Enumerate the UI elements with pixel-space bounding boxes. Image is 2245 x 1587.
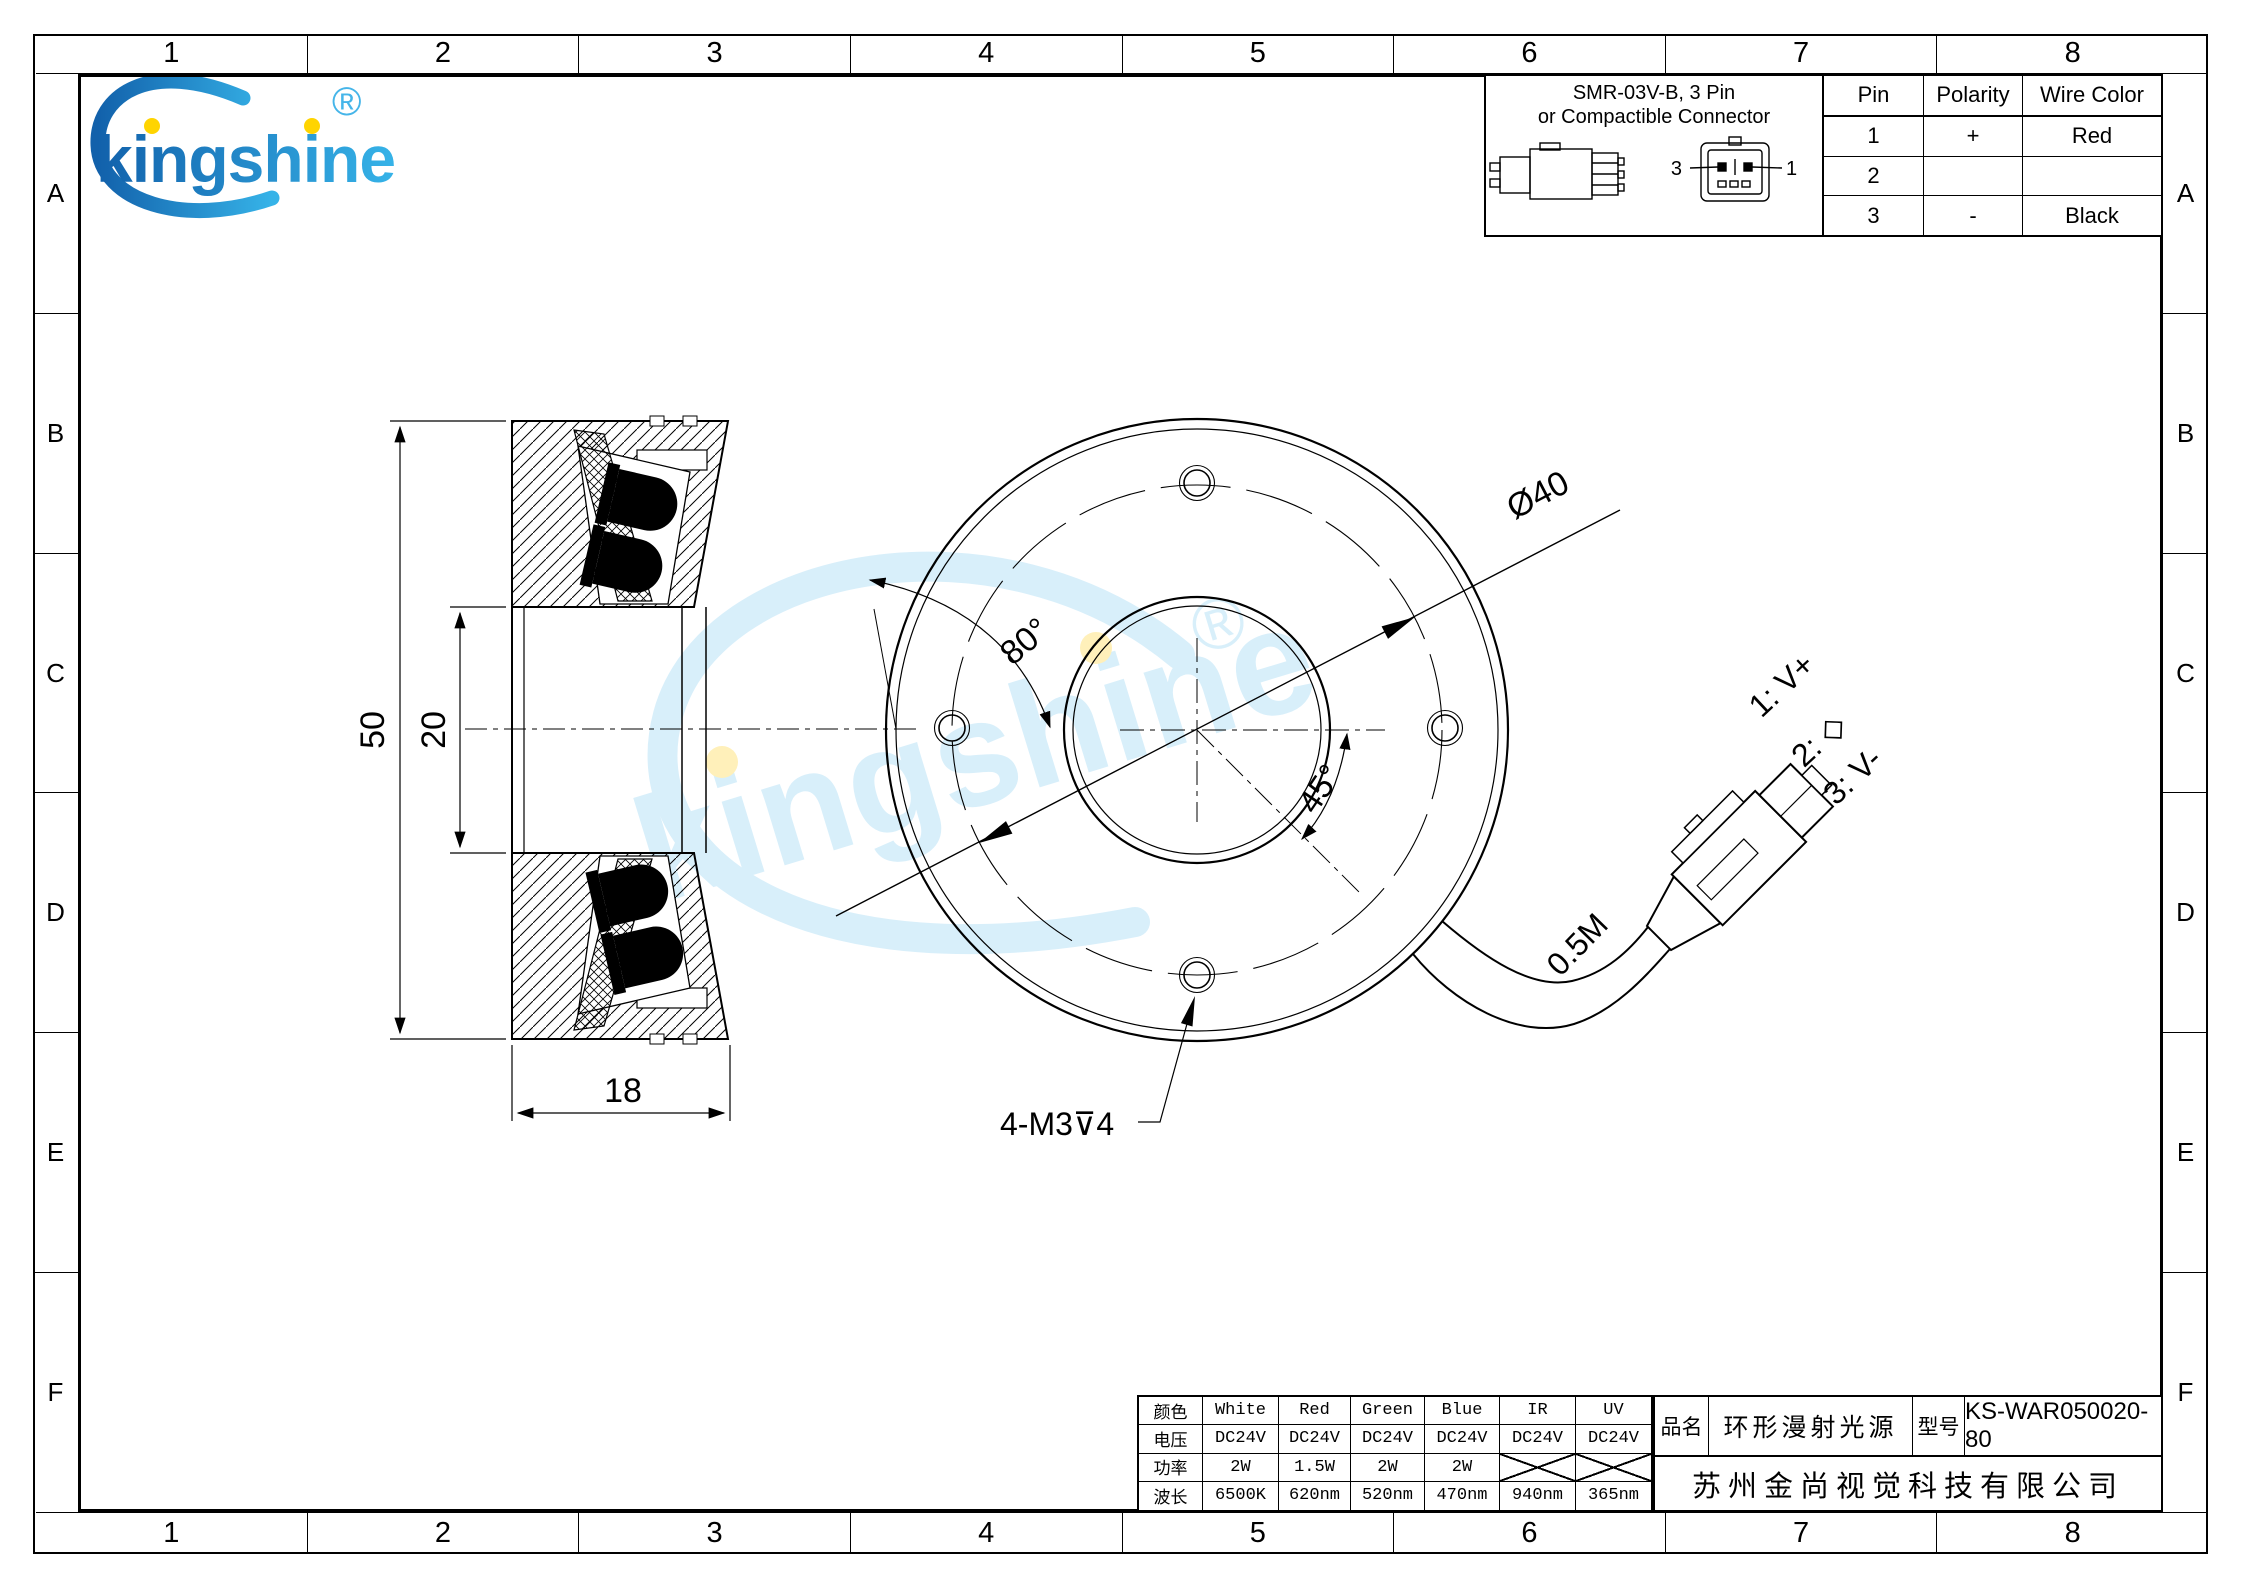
- spec-cell: 470nm: [1425, 1482, 1500, 1510]
- spec-cell: Blue: [1425, 1397, 1500, 1425]
- spec-cell: 940nm: [1500, 1482, 1576, 1510]
- spec-cell-crossed: [1576, 1454, 1651, 1482]
- spec-row-label: 颜色: [1139, 1397, 1203, 1425]
- zone-column-label: 1: [36, 1513, 307, 1554]
- polarity-cell: [1924, 157, 2023, 196]
- polarity-cell: +: [1924, 117, 2023, 156]
- pin-cell: 3: [1824, 196, 1924, 235]
- spec-cell: 620nm: [1279, 1482, 1351, 1510]
- zone-column-label: 1: [36, 34, 307, 73]
- zone-column-label: 7: [1665, 34, 1937, 73]
- connector-drawing-icon: 3 1: [1486, 131, 1820, 233]
- spec-cell: IR: [1500, 1397, 1576, 1425]
- spec-cell: 6500K: [1203, 1482, 1279, 1510]
- spec-cell: DC24V: [1203, 1425, 1279, 1453]
- spec-cell: 1.5W: [1279, 1454, 1351, 1482]
- pin-table: Pin Polarity Wire Color 1 + Red 2 3 - Bl…: [1824, 76, 2161, 235]
- spec-cell: DC24V: [1279, 1425, 1351, 1453]
- sheet-inner-frame: [78, 74, 2163, 1512]
- zone-column-label: 4: [850, 34, 1122, 73]
- spec-cell: White: [1203, 1397, 1279, 1425]
- zone-row-label: B: [2163, 313, 2208, 553]
- zone-column-label: 2: [307, 34, 579, 73]
- zone-column-label: 2: [307, 1513, 579, 1554]
- pin-table-row: 1 + Red: [1824, 117, 2161, 157]
- connector-pin1-label: 1: [1786, 158, 1797, 180]
- spec-cell-crossed: [1500, 1454, 1576, 1482]
- title-block-top-row: 品名 环形漫射光源 型号 KS-WAR050020-80: [1655, 1397, 2161, 1457]
- company-name: 苏州金尚视觉科技有限公司: [1655, 1457, 2161, 1510]
- zone-column-label: 3: [578, 34, 850, 73]
- pin-cell: 2: [1824, 157, 1924, 196]
- spec-cell: 2W: [1351, 1454, 1425, 1482]
- wire-color-cell: Red: [2023, 117, 2161, 156]
- zone-band-bottom: 1 2 3 4 5 6 7 8: [36, 1512, 2208, 1554]
- zone-row-label: E: [33, 1032, 78, 1272]
- connector-info-box: SMR-03V-B, 3 Pin or Compactible Connecto…: [1484, 74, 2163, 237]
- connector-title: SMR-03V-B, 3 Pin or Compactible Connecto…: [1486, 76, 1822, 129]
- spec-cell: DC24V: [1500, 1425, 1576, 1453]
- spec-row-label: 功率: [1139, 1454, 1203, 1482]
- zone-band-top: 1 2 3 4 5 6 7 8: [36, 34, 2208, 74]
- zone-band-right: A B C D E F: [2163, 74, 2208, 1512]
- zone-row-label: A: [2163, 74, 2208, 313]
- zone-row-label: F: [2163, 1272, 2208, 1512]
- spec-cell: 520nm: [1351, 1482, 1425, 1510]
- model-number: KS-WAR050020-80: [1965, 1397, 2161, 1455]
- connector-title-line2: or Compactible Connector: [1486, 105, 1822, 129]
- zone-band-left: A B C D E F: [33, 74, 78, 1512]
- zone-column-label: 5: [1122, 34, 1394, 73]
- spec-cell: 2W: [1425, 1454, 1500, 1482]
- wire-color-cell: [2023, 157, 2161, 196]
- spec-row-label: 电压: [1139, 1425, 1203, 1453]
- spec-cell: DC24V: [1351, 1425, 1425, 1453]
- pin-table-header-row: Pin Polarity Wire Color: [1824, 76, 2161, 117]
- zone-column-label: 4: [850, 1513, 1122, 1554]
- spec-row-label: 波长: [1139, 1482, 1203, 1510]
- polarity-header: Polarity: [1924, 76, 2023, 115]
- connector-pin3-label: 3: [1671, 158, 1682, 180]
- zone-column-label: 7: [1665, 1513, 1937, 1554]
- connector-spec-cell: SMR-03V-B, 3 Pin or Compactible Connecto…: [1486, 76, 1824, 235]
- product-name-label: 品名: [1655, 1397, 1709, 1455]
- zone-row-label: C: [33, 553, 78, 793]
- pin-header: Pin: [1824, 76, 1924, 115]
- zone-column-label: 8: [1936, 1513, 2208, 1554]
- zone-row-label: F: [33, 1272, 78, 1512]
- spec-cell: Red: [1279, 1397, 1351, 1425]
- spec-cell: UV: [1576, 1397, 1651, 1425]
- zone-row-label: A: [33, 74, 78, 313]
- zone-row-label: D: [2163, 792, 2208, 1032]
- spec-cell: 365nm: [1576, 1482, 1651, 1510]
- zone-column-label: 5: [1122, 1513, 1394, 1554]
- zone-row-label: B: [33, 313, 78, 553]
- title-block: 品名 环形漫射光源 型号 KS-WAR050020-80 苏州金尚视觉科技有限公…: [1653, 1395, 2163, 1512]
- zone-column-label: 6: [1393, 1513, 1665, 1554]
- zone-row-label: C: [2163, 553, 2208, 793]
- zone-column-label: 3: [578, 1513, 850, 1554]
- zone-column-label: 6: [1393, 34, 1665, 73]
- connector-title-line1: SMR-03V-B, 3 Pin: [1486, 81, 1822, 105]
- product-name: 环形漫射光源: [1709, 1397, 1913, 1455]
- model-label: 型号: [1913, 1397, 1965, 1455]
- pin-table-row: 3 - Black: [1824, 196, 2161, 235]
- wire-color-cell: Black: [2023, 196, 2161, 235]
- wire-color-header: Wire Color: [2023, 76, 2161, 115]
- polarity-cell: -: [1924, 196, 2023, 235]
- spec-cell: DC24V: [1576, 1425, 1651, 1453]
- spec-cell: DC24V: [1425, 1425, 1500, 1453]
- spec-table: 颜色 White Red Green Blue IR UV 电压 DC24V D…: [1137, 1395, 1653, 1512]
- spec-cell: 2W: [1203, 1454, 1279, 1482]
- zone-row-label: E: [2163, 1032, 2208, 1272]
- pin-cell: 1: [1824, 117, 1924, 156]
- pin-table-row: 2: [1824, 157, 2161, 197]
- zone-row-label: D: [33, 792, 78, 1032]
- spec-cell: Green: [1351, 1397, 1425, 1425]
- zone-column-label: 8: [1936, 34, 2208, 73]
